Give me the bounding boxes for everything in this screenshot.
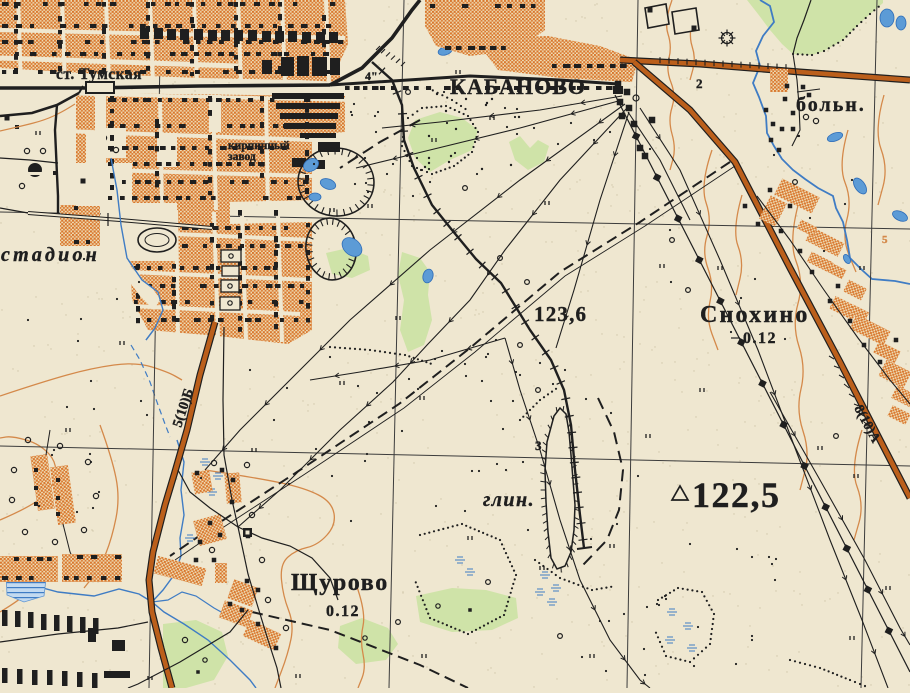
svg-text:глин.: глин. xyxy=(483,489,535,511)
svg-text:0.12: 0.12 xyxy=(326,603,360,620)
svg-text:ст. Тумская: ст. Тумская xyxy=(56,66,142,83)
svg-text:5: 5 xyxy=(882,234,888,246)
svg-text:3: 3 xyxy=(535,438,542,453)
svg-text:Щурово: Щурово xyxy=(291,570,389,596)
svg-text:больн.: больн. xyxy=(796,94,866,116)
svg-text:КАБАНОВО: КАБАНОВО xyxy=(450,74,586,99)
svg-text:122,5: 122,5 xyxy=(692,475,781,515)
svg-text:123,6: 123,6 xyxy=(534,302,587,326)
svg-text:0.12: 0.12 xyxy=(743,330,777,347)
svg-text:4": 4" xyxy=(365,69,378,83)
svg-text:Снохино: Снохино xyxy=(700,302,810,328)
svg-text:2: 2 xyxy=(696,76,703,91)
svg-text:стадион: стадион xyxy=(1,244,100,266)
svg-text:завод: завод xyxy=(228,151,256,163)
